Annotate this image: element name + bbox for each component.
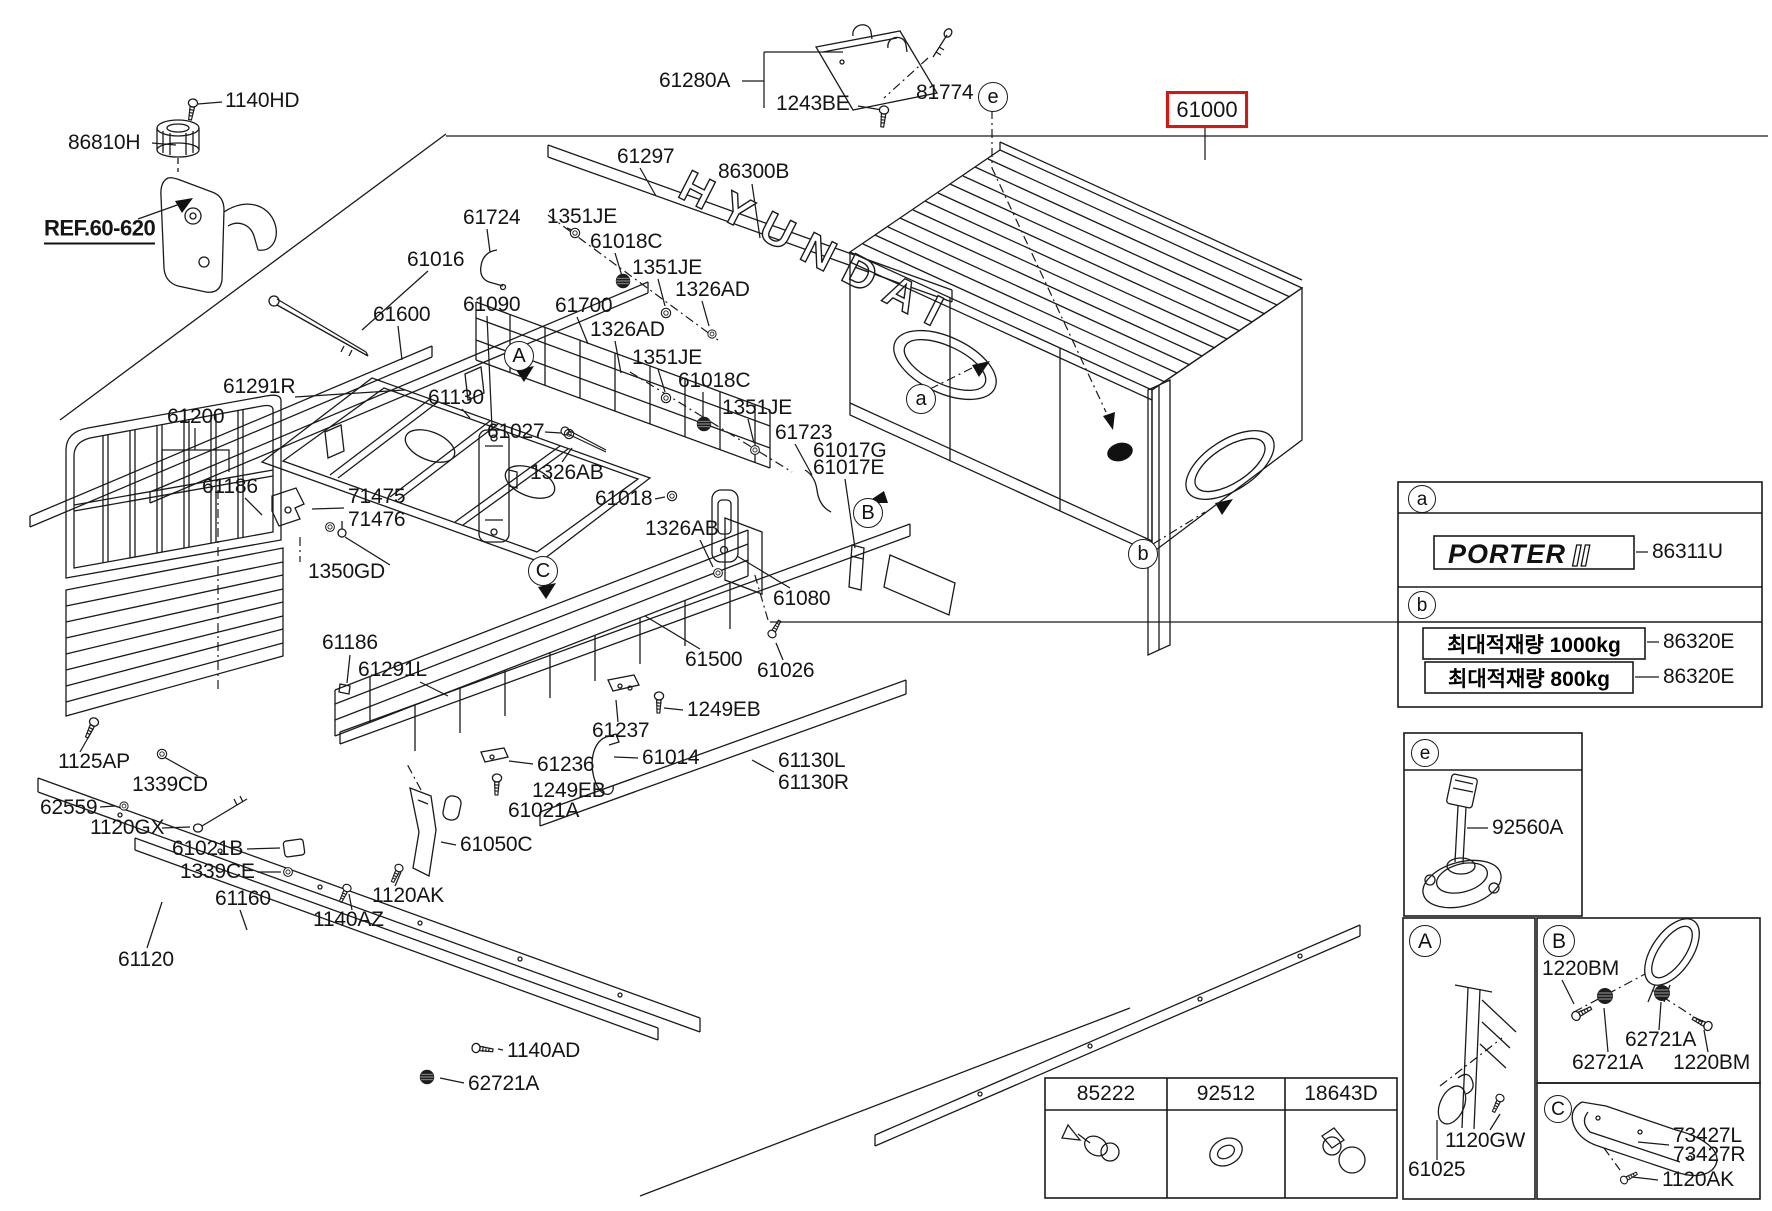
table-header-85222: 85222 <box>1077 1082 1135 1106</box>
part-label-62721A: 62721A <box>1625 1029 1696 1050</box>
part-label-61014: 61014 <box>642 747 699 768</box>
part-label-61236: 61236 <box>537 754 594 775</box>
part-label-61021A: 61021A <box>508 800 579 821</box>
hyundai-logo-text: HYUNDAI <box>671 161 953 337</box>
callout-A: A <box>1409 925 1441 957</box>
part-label-1351JE: 1351JE <box>722 397 792 418</box>
part-label-86810H: 86810H <box>68 132 140 153</box>
part-label-1351JE: 1351JE <box>632 257 702 278</box>
part-label-61724: 61724 <box>463 207 520 228</box>
part-label-1140AD: 1140AD <box>507 1040 580 1061</box>
part-label-61130R: 61130R <box>778 772 849 793</box>
part-label-61291R: 61291R <box>223 376 295 397</box>
part-label-61016: 61016 <box>407 249 464 270</box>
part-label-61018C: 61018C <box>590 231 662 252</box>
part-label-1140HD: 1140HD <box>225 90 299 111</box>
highlighted-part-number: 61000 <box>1176 97 1237 123</box>
part-label-1326AB: 1326AB <box>645 518 719 539</box>
part-label-1350GD: 1350GD <box>308 561 385 582</box>
ref-60-620-link[interactable]: REF.60-620 <box>44 216 155 245</box>
part-label-61186: 61186 <box>202 476 258 497</box>
callout-C: C <box>1544 1095 1572 1123</box>
part-label-61025: 61025 <box>1408 1159 1465 1180</box>
callout-b: b <box>1408 591 1436 619</box>
capacity-plate-1000kg: 최대적재량 1000kg <box>1423 628 1645 659</box>
part-label-61090: 61090 <box>463 294 520 315</box>
part-label-1120AK: 1120AK <box>372 885 444 906</box>
part-label-61050C: 61050C <box>460 834 532 855</box>
part-label-1140AZ: 1140AZ <box>313 909 384 930</box>
callout-a: a <box>906 384 936 414</box>
part-label-1326AD: 1326AD <box>675 279 750 300</box>
part-label-1120GW: 1120GW <box>1445 1130 1525 1151</box>
part-label-61018: 61018 <box>595 488 652 509</box>
callout-B: B <box>853 498 883 528</box>
part-label-86320E: 86320E <box>1663 631 1734 652</box>
part-label-1220BM: 1220BM <box>1673 1052 1750 1073</box>
panel-borders <box>1045 482 1762 1199</box>
b-panel-drawing <box>1634 909 1710 1002</box>
part-label-92560A: 92560A <box>1492 817 1563 838</box>
part-label-86320E: 86320E <box>1663 666 1734 687</box>
part-label-1125AP: 1125AP <box>58 751 130 772</box>
part-label-61280A: 61280A <box>659 70 730 91</box>
part-label-1326AB: 1326AB <box>530 462 604 483</box>
parts-diagram-page: HYUNDAI <box>0 0 1772 1211</box>
part-label-61120: 61120 <box>118 949 174 970</box>
part-label-61700: 61700 <box>555 295 612 316</box>
part-label-1326AD: 1326AD <box>590 319 665 340</box>
part-label-61600: 61600 <box>373 304 430 325</box>
callout-A: A <box>504 341 534 371</box>
part-label-61130L: 61130L <box>778 750 845 771</box>
part-label-61186: 61186 <box>322 632 378 653</box>
part-label-61297: 61297 <box>617 146 674 167</box>
part-label-73427R: 73427R <box>1673 1144 1745 1165</box>
part-label-61291L: 61291L <box>358 659 427 680</box>
part-label-62559: 62559 <box>40 797 97 818</box>
part-label-1351JE: 1351JE <box>547 206 617 227</box>
sensor-92560a-drawing <box>1418 774 1507 916</box>
part-label-61500: 61500 <box>685 649 742 670</box>
part-label-61130: 61130 <box>428 387 484 408</box>
part-label-62721A: 62721A <box>468 1073 539 1094</box>
a-panel-drawing <box>1433 985 1516 1129</box>
part-label-61080: 61080 <box>773 588 830 609</box>
part-label-61237: 61237 <box>592 720 649 741</box>
callout-a: a <box>1408 485 1436 513</box>
porter-logo-roman-two: II <box>1572 538 1591 573</box>
part-label-1220BM: 1220BM <box>1542 958 1619 979</box>
part-label-1339CE: 1339CE <box>180 861 255 882</box>
part-label-61026: 61026 <box>757 660 814 681</box>
part-label-86311U: 86311U <box>1652 541 1723 562</box>
capacity-plate-800kg: 최대적재량 800kg <box>1425 662 1633 693</box>
part-label-81774: 81774 <box>916 82 973 103</box>
part-label-71475: 71475 <box>348 486 405 507</box>
part-label-1351JE: 1351JE <box>632 347 702 368</box>
part-label-61018C: 61018C <box>678 370 750 391</box>
part-label-86300B: 86300B <box>718 161 789 182</box>
diagram-line-art: HYUNDAI <box>0 0 1772 1211</box>
part-label-1120GX: 1120GX <box>90 817 164 838</box>
rails-and-headboard-drawing <box>30 282 910 826</box>
callout-e: e <box>978 82 1008 112</box>
part-label-1249EB: 1249EB <box>532 780 606 801</box>
part-label-1339CD: 1339CD <box>132 774 208 795</box>
table-header-18643d: 18643D <box>1304 1082 1378 1106</box>
part-label-61200: 61200 <box>167 406 224 427</box>
part-label-71476: 71476 <box>348 509 405 530</box>
leader-lines <box>80 52 1708 1180</box>
part-label-1249EB: 1249EB <box>687 699 761 720</box>
part-label-61017E: 61017E <box>813 457 884 478</box>
callout-C: C <box>528 556 558 586</box>
part-label-61160: 61160 <box>215 888 271 909</box>
callout-B: B <box>1543 925 1575 957</box>
part-label-61021B: 61021B <box>172 838 243 859</box>
table-fastener-glyphs <box>1062 1125 1365 1173</box>
highlighted-part-61000[interactable]: 61000 <box>1166 91 1248 128</box>
part-label-1120AK: 1120AK <box>1662 1169 1734 1190</box>
porter-logo-text: PORTER <box>1448 539 1566 569</box>
part-label-61027: 61027 <box>487 421 544 442</box>
table-header-92512: 92512 <box>1197 1082 1255 1106</box>
part-label-1243BE: 1243BE <box>776 93 850 114</box>
callout-e: e <box>1411 739 1439 767</box>
callout-b: b <box>1128 539 1158 569</box>
part-label-62721A: 62721A <box>1572 1052 1643 1073</box>
